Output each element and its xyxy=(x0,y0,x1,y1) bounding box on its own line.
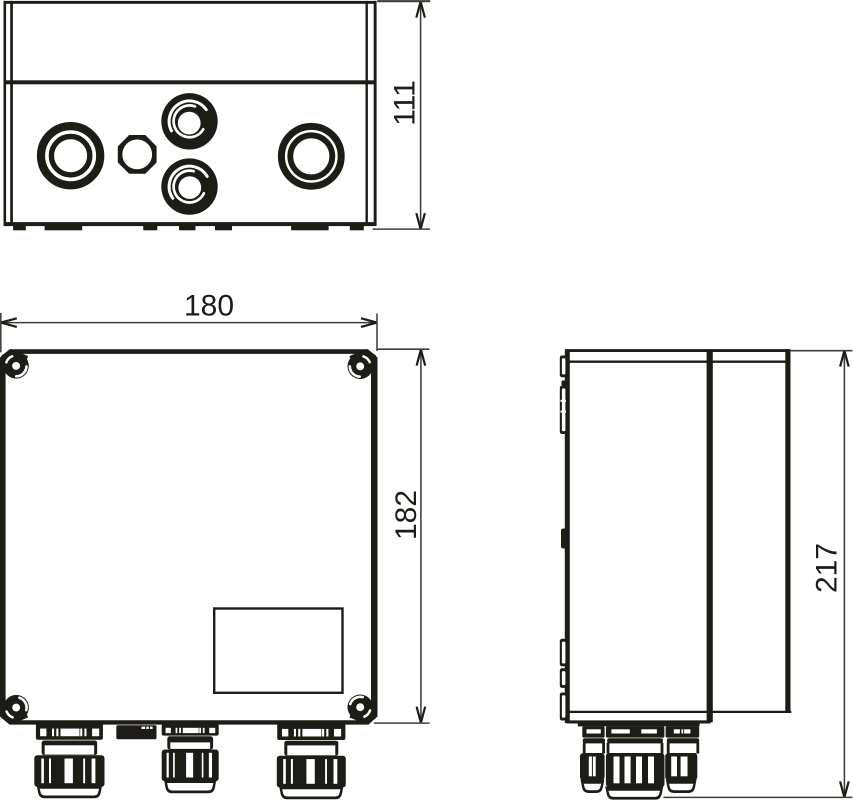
svg-text:217: 217 xyxy=(811,543,844,593)
svg-text:111: 111 xyxy=(389,80,422,126)
svg-text:182: 182 xyxy=(390,490,423,540)
svg-text:180: 180 xyxy=(184,290,234,323)
